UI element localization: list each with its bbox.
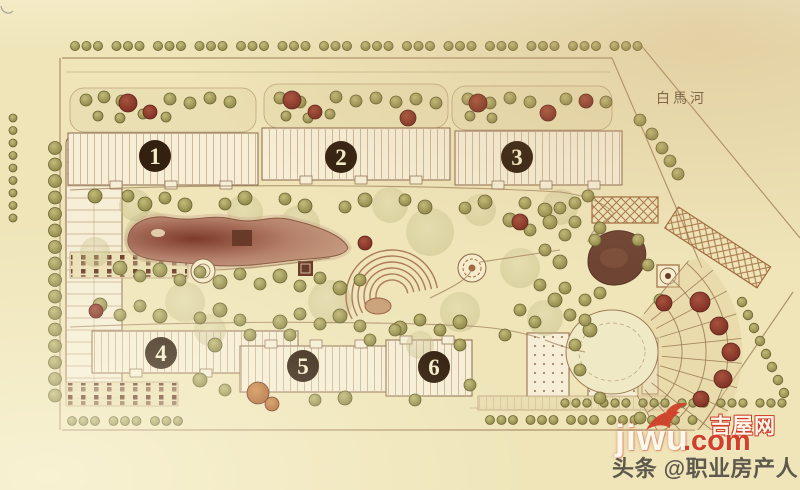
red-tree — [308, 105, 322, 119]
tree — [553, 255, 567, 269]
tree — [465, 111, 475, 121]
tree — [632, 234, 644, 246]
building-6-number: 6 — [428, 355, 440, 380]
street-tree — [153, 41, 162, 50]
street-tree — [455, 41, 464, 50]
tree — [238, 191, 252, 205]
street-tree — [509, 416, 518, 425]
square-pavilion — [298, 261, 313, 276]
tree — [634, 114, 646, 126]
red-tree — [119, 94, 137, 112]
tree — [273, 315, 287, 329]
tree — [174, 274, 186, 286]
street-tree — [384, 41, 393, 50]
tree — [418, 200, 432, 214]
tree — [354, 274, 366, 286]
tree — [93, 111, 103, 121]
street-tree — [779, 388, 789, 398]
tree — [539, 244, 551, 256]
building-badge-1: 1 — [139, 140, 171, 172]
pergola-south-entrance — [66, 382, 178, 406]
tree — [656, 142, 668, 154]
street-tree — [195, 41, 204, 50]
red-tree — [690, 292, 710, 312]
building-3 — [455, 131, 622, 189]
tree — [294, 280, 306, 292]
street-tree — [109, 417, 118, 426]
street-tree — [773, 375, 783, 385]
street-tree — [206, 41, 215, 50]
street-tree — [49, 274, 62, 287]
red-tree — [579, 94, 593, 108]
tree — [370, 92, 382, 104]
tree — [194, 312, 206, 324]
street-tree — [151, 417, 160, 426]
street-tree — [568, 41, 577, 50]
street-tree — [49, 208, 62, 221]
street-tree — [526, 416, 535, 425]
street-tree — [578, 416, 587, 425]
tree — [325, 109, 335, 119]
street-tree — [289, 41, 298, 50]
tree — [219, 384, 231, 396]
tree — [564, 309, 576, 321]
tree — [554, 202, 566, 214]
street-tree — [497, 41, 506, 50]
building-badge-2: 2 — [325, 141, 357, 173]
street-tree — [572, 399, 580, 407]
street-tree — [49, 175, 62, 188]
tree — [354, 320, 366, 332]
tree — [487, 113, 497, 123]
red-tree — [283, 91, 301, 109]
street-tree — [49, 356, 62, 369]
tree — [88, 189, 102, 203]
pond-island — [151, 229, 165, 237]
street-tree — [49, 323, 62, 336]
street-tree — [9, 202, 17, 210]
street-tree — [49, 158, 62, 171]
tree — [664, 155, 676, 167]
red-tree — [512, 214, 528, 230]
byline-text: 头条 @职业房产人 — [612, 451, 798, 483]
street-tree — [9, 152, 17, 160]
tree — [204, 92, 216, 104]
street-tree — [68, 417, 77, 426]
street-tree — [743, 310, 753, 320]
tree — [594, 287, 606, 299]
street-tree — [248, 41, 257, 50]
tree — [582, 190, 594, 202]
street-tree — [9, 164, 17, 172]
street-tree — [91, 417, 100, 426]
street-tree — [756, 399, 764, 407]
tree — [115, 113, 125, 123]
building-badge-3: 3 — [501, 141, 533, 173]
tree — [339, 201, 351, 213]
tree — [219, 198, 231, 210]
amphitheater-step — [352, 256, 431, 316]
tree — [559, 229, 571, 241]
tree — [464, 379, 476, 391]
tree — [499, 329, 511, 341]
tree — [273, 269, 287, 283]
tree — [184, 97, 196, 109]
amphitheater-stage — [365, 298, 391, 314]
street-tree — [622, 399, 630, 407]
tree — [244, 329, 256, 341]
tree — [161, 112, 171, 122]
tree — [569, 197, 581, 209]
river-bank-line — [640, 44, 800, 238]
street-tree — [621, 41, 630, 50]
street-tree — [49, 191, 62, 204]
tree — [543, 215, 557, 229]
street-tree — [135, 41, 144, 50]
tree — [98, 91, 110, 103]
tree — [234, 314, 246, 326]
street-tree — [70, 41, 79, 50]
building-2-number: 2 — [335, 145, 347, 170]
street-tree — [218, 41, 227, 50]
street-tree — [778, 399, 786, 407]
tree — [80, 94, 92, 106]
tree — [338, 391, 352, 405]
green-mass — [80, 237, 110, 267]
tree — [574, 364, 586, 376]
tree — [569, 339, 581, 351]
building-4-number: 4 — [155, 341, 167, 366]
tree — [113, 261, 127, 275]
street-tree — [132, 417, 141, 426]
street-tree — [508, 41, 517, 50]
tree — [333, 309, 347, 323]
street-tree — [538, 41, 547, 50]
tree — [594, 392, 606, 404]
street-tree — [331, 41, 340, 50]
tree — [234, 268, 246, 280]
tree — [159, 192, 171, 204]
red-tree — [693, 391, 709, 407]
red-tree — [89, 304, 103, 318]
street-tree — [165, 41, 174, 50]
street-tree — [49, 241, 62, 254]
street-tree — [49, 290, 62, 303]
tree — [298, 199, 312, 213]
tree — [524, 96, 536, 108]
tree — [122, 190, 134, 202]
scan-pen-mark — [1, 6, 13, 13]
street-tree — [49, 389, 62, 402]
tree — [164, 93, 176, 105]
red-tree — [469, 94, 487, 112]
tree — [294, 308, 306, 320]
tree — [672, 168, 684, 180]
tree — [594, 222, 606, 234]
tree — [178, 198, 192, 212]
tree — [153, 263, 167, 277]
site-plan-image: 1 2 3 4 5 6 白馬河 吉屋网 jiwu.com 头条 @职业房产人 — [0, 0, 800, 490]
red-tree — [400, 110, 416, 126]
street-tree — [497, 416, 506, 425]
tree — [529, 316, 541, 328]
tree — [213, 303, 227, 317]
tree — [279, 193, 291, 205]
building-badge-4: 4 — [145, 337, 177, 369]
street-tree — [372, 41, 381, 50]
tree — [281, 111, 291, 121]
tree — [350, 95, 362, 107]
street-tree — [342, 41, 351, 50]
street-tree — [319, 41, 328, 50]
street-tree — [414, 41, 423, 50]
street-tree — [761, 349, 771, 359]
red-tree — [714, 370, 732, 388]
trellis-horizontal — [592, 197, 658, 223]
street-tree — [49, 257, 62, 270]
street-tree — [9, 214, 17, 222]
tree — [314, 318, 326, 330]
tree — [314, 272, 326, 284]
tree — [504, 92, 516, 104]
street-tree — [123, 41, 132, 50]
street-tree — [259, 41, 268, 50]
street-tree — [361, 41, 370, 50]
street-tree — [176, 41, 185, 50]
street-tree — [580, 41, 589, 50]
street-tree — [633, 41, 642, 50]
orange-tree — [265, 397, 279, 411]
red-tree — [358, 236, 372, 250]
street-tree — [749, 323, 759, 333]
tree — [390, 96, 402, 108]
building-1-number: 1 — [149, 144, 161, 169]
street-tree — [567, 416, 576, 425]
tree — [569, 216, 581, 228]
street-tree — [467, 41, 476, 50]
street-tree — [444, 41, 453, 50]
tree — [284, 329, 296, 341]
tree — [330, 91, 342, 103]
tree — [559, 282, 571, 294]
red-tree — [710, 317, 728, 335]
tree — [333, 281, 347, 295]
street-tree — [9, 127, 17, 135]
tree — [548, 293, 562, 307]
street-tree — [485, 41, 494, 50]
street-tree — [550, 41, 559, 50]
red-tree — [540, 105, 556, 121]
street-tree — [402, 41, 411, 50]
building-3-number: 3 — [511, 145, 523, 170]
street-tree — [717, 399, 725, 407]
street-tree — [527, 41, 536, 50]
tree — [410, 93, 422, 105]
tree — [254, 278, 266, 290]
street-tree — [49, 373, 62, 386]
street-tree — [538, 416, 547, 425]
building-badge-5: 5 — [287, 350, 319, 382]
street-tree — [767, 399, 775, 407]
tree — [364, 334, 376, 346]
tree — [134, 270, 146, 282]
tree — [138, 197, 152, 211]
tree — [153, 309, 167, 323]
street-tree — [162, 417, 171, 426]
street-tree — [591, 41, 600, 50]
tree — [579, 314, 591, 326]
tree — [589, 234, 601, 246]
tree — [478, 195, 492, 209]
street-tree — [425, 41, 434, 50]
street-tree — [755, 336, 765, 346]
red-tree — [722, 343, 740, 361]
tree — [600, 96, 612, 108]
tree — [309, 394, 321, 406]
tree — [358, 193, 372, 207]
street-tree — [49, 340, 62, 353]
building-badge-6: 6 — [418, 351, 450, 383]
tree — [399, 194, 411, 206]
tree — [453, 315, 467, 329]
street-tree — [49, 142, 62, 155]
street-tree — [301, 41, 310, 50]
street-tree — [49, 307, 62, 320]
street-tree — [9, 177, 17, 185]
street-tree — [590, 416, 599, 425]
street-tree — [728, 399, 736, 407]
street-tree — [561, 399, 569, 407]
street-tree — [174, 417, 183, 426]
tree — [579, 294, 591, 306]
tree — [193, 373, 207, 387]
street-tree — [739, 399, 747, 407]
red-tree — [656, 295, 672, 311]
street-tree — [549, 416, 558, 425]
tree — [134, 300, 146, 312]
street-tree — [236, 41, 245, 50]
tree — [414, 314, 426, 326]
tree — [430, 97, 442, 109]
water-pavilion — [232, 230, 252, 246]
tree — [194, 266, 206, 278]
street-tree — [82, 41, 91, 50]
street-tree — [121, 417, 130, 426]
tree — [642, 259, 654, 271]
street-tree — [583, 399, 591, 407]
street-tree — [9, 114, 17, 122]
street-tree — [79, 417, 88, 426]
street-tree — [93, 41, 102, 50]
street-tree — [9, 139, 17, 147]
building-5-number: 5 — [297, 354, 309, 379]
tree — [213, 275, 227, 289]
street-tree — [737, 297, 747, 307]
street-tree — [278, 41, 287, 50]
tree — [560, 93, 572, 105]
street-tree — [49, 224, 62, 237]
tree — [434, 324, 446, 336]
red-tree — [143, 105, 157, 119]
street-tree — [767, 362, 777, 372]
street-tree — [611, 399, 619, 407]
street-tree — [112, 41, 121, 50]
river-label: 白馬河 — [656, 91, 707, 107]
green-mass — [406, 208, 454, 256]
tree — [114, 309, 126, 321]
tree — [514, 304, 526, 316]
tree — [409, 394, 421, 406]
tree — [646, 128, 658, 140]
tree — [454, 339, 466, 351]
street-tree — [9, 189, 17, 197]
tree — [534, 279, 546, 291]
tree — [208, 338, 222, 352]
tree — [519, 197, 531, 209]
street-tree — [486, 416, 495, 425]
tree — [459, 202, 471, 214]
street-tree — [610, 41, 619, 50]
tree — [224, 96, 236, 108]
tree — [389, 324, 401, 336]
